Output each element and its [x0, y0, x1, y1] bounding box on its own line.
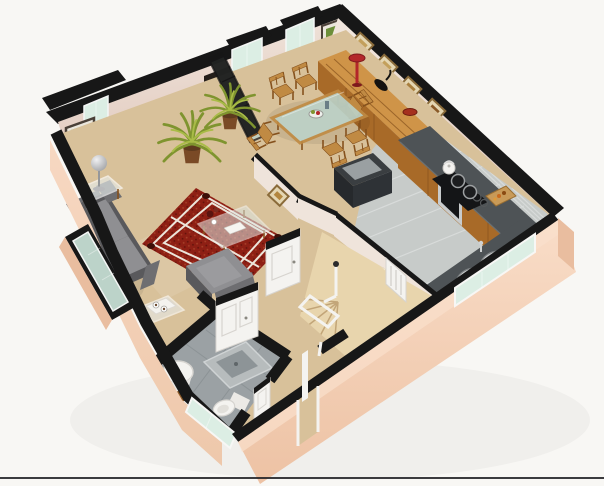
lamp-base: [93, 187, 105, 192]
kettle: [443, 161, 455, 174]
bottom-border-line: [0, 477, 604, 479]
entry-jamb-inner: [319, 342, 321, 356]
fruit: [311, 110, 315, 114]
fruit: [316, 111, 320, 115]
fruit-bowl: [309, 110, 323, 118]
door-knob: [293, 261, 296, 264]
vase: [325, 101, 329, 109]
cup: [212, 220, 217, 225]
faucet-head: [479, 241, 483, 245]
door-knob: [245, 317, 248, 320]
railing-finial: [333, 261, 339, 267]
rug-decor-vase: [207, 211, 214, 218]
lamp-sphere: [91, 155, 107, 171]
cooking-pot: [464, 186, 477, 199]
screenshot-canvas: 3D isometric render of a one-floor apart…: [0, 0, 604, 486]
shower-drain: [234, 362, 238, 366]
floor-plan-render: 3D isometric render of a one-floor apart…: [0, 0, 604, 486]
red-bowl: [403, 109, 417, 116]
rug-decor-vase: [214, 208, 219, 213]
entry-door-leaf: [302, 350, 308, 402]
cooking-pot: [452, 175, 465, 188]
